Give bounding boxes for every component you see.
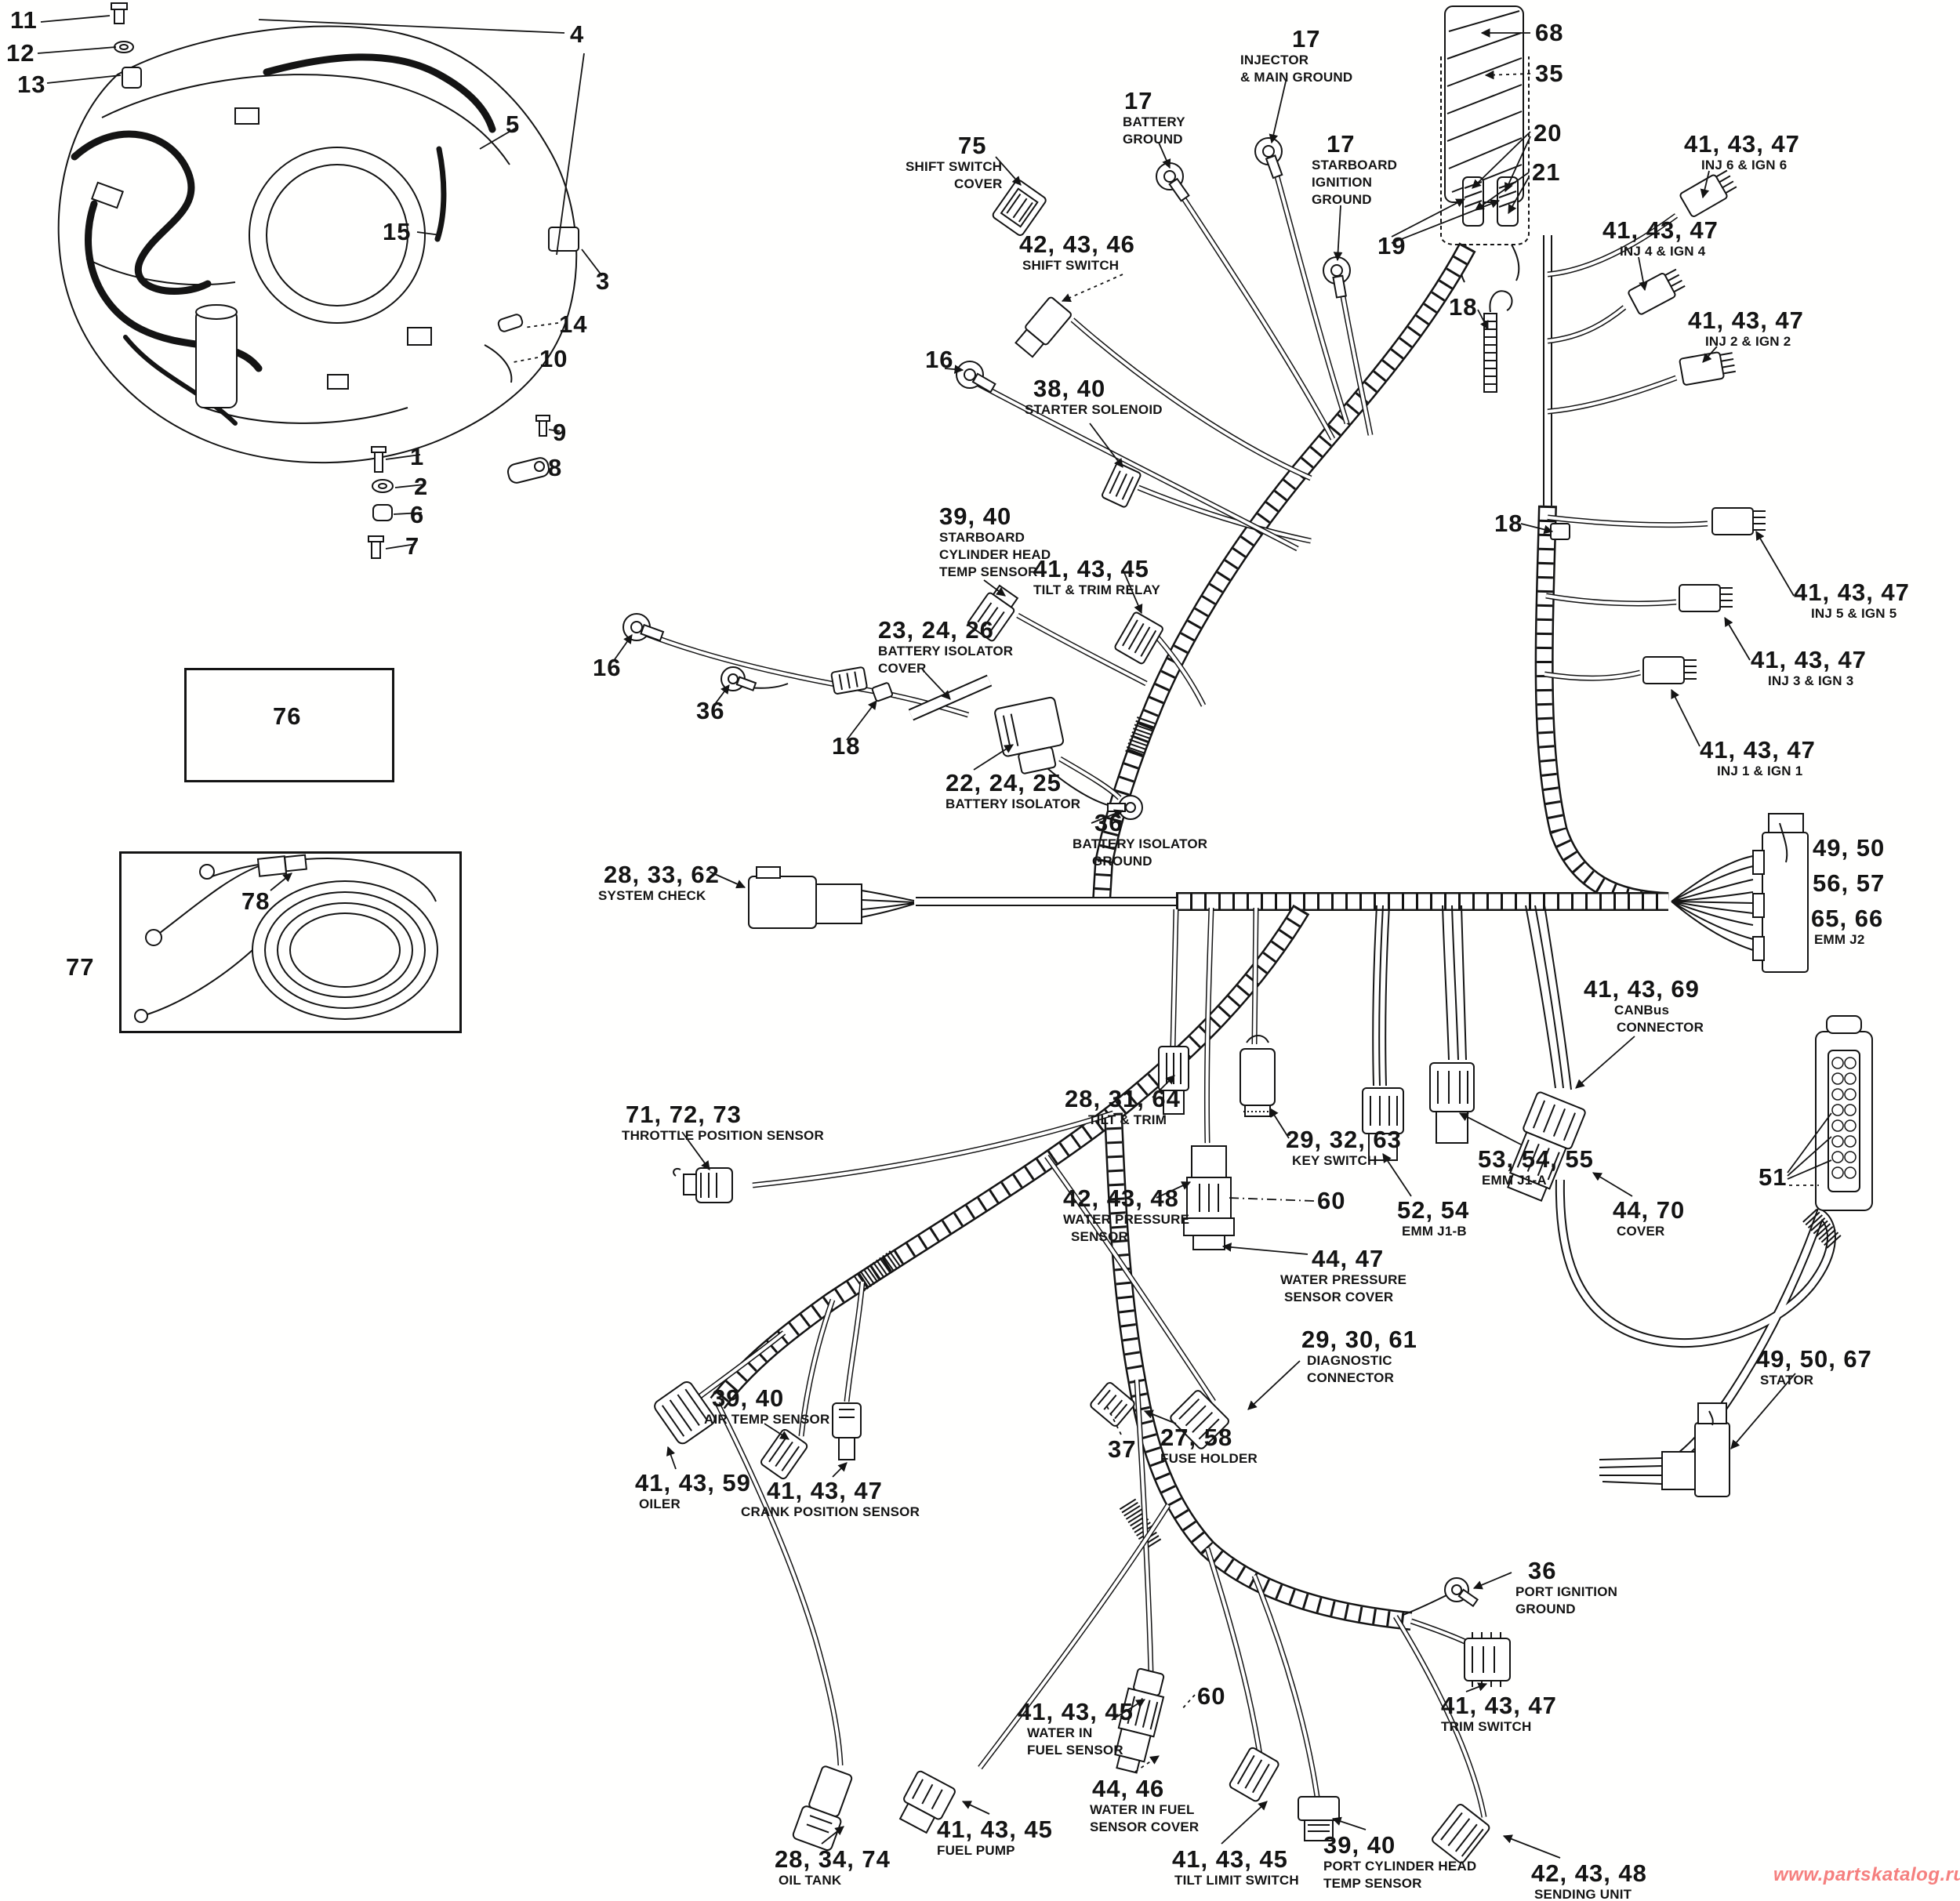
callout-sending-unit: 42, 43, 48SENDING UNIT [1531,1861,1647,1901]
callout-77: 77 [66,955,94,980]
part-number: 12 [6,41,34,66]
callout-15: 15 [383,219,411,245]
part-number: 14 [559,312,587,337]
part-label: SYSTEM CHECK [598,887,720,905]
part-number: 41, 43, 45 [1018,1700,1134,1725]
part-label: CRANK POSITION SENSOR [741,1504,920,1521]
part-number: 41, 43, 47 [1684,132,1800,157]
part-number: 6 [410,502,424,528]
part-label: TILT & TRIM RELAY [1033,582,1160,599]
part-number: 11 [10,8,38,33]
part-label: WATER IN FUEL [1090,1801,1199,1819]
callout-water-pressure-sensor: 42, 43, 48WATER PRESSURESENSOR [1063,1186,1189,1246]
callout-emm-j2-4950: 49, 50 [1813,836,1885,861]
crank-part [833,1403,861,1460]
callout-inj1: 41, 43, 47INJ 1 & IGN 1 [1700,738,1816,780]
callout-fuse-holder: 27, 58FUSE HOLDER [1160,1425,1258,1467]
powerhead-assembly-drawing [59,26,579,463]
part-number: 41, 43, 45 [1033,557,1160,582]
part-number: 19 [1377,234,1406,259]
system-check-connector [749,867,914,928]
callout-water-in-fuel-sensor-cover: 44, 46WATER IN FUELSENSOR COVER [1090,1776,1199,1836]
key-switch-part [1240,1036,1275,1116]
part-number: 29, 30, 61 [1301,1327,1417,1352]
part-label: INJ 3 & IGN 3 [1768,673,1867,690]
callout-port-cyl-head-temp: 39, 40PORT CYLINDER HEADTEMP SENSOR [1323,1833,1476,1892]
callout-5: 5 [506,112,520,137]
part-label: OIL TANK [779,1872,891,1889]
callout-20: 20 [1534,121,1562,146]
part-number: 17 [1292,27,1352,52]
part-label: GROUND [1312,191,1397,209]
callout-11: 11 [10,8,38,33]
part-number: 60 [1197,1684,1225,1709]
part-label: INJECTOR [1240,52,1352,69]
callout-emm-j1a: 53, 54, 55EMM J1-A [1478,1147,1594,1189]
callout-inj6: 41, 43, 47INJ 6 & IGN 6 [1684,132,1800,174]
stick-18 [1484,291,1512,392]
part-number: 76 [273,704,301,729]
watermark: www.partskatalog.ru [1773,1864,1960,1886]
part-number: 51 [1759,1165,1787,1190]
callout-14: 14 [559,312,587,337]
part-number: 5 [506,112,520,137]
callout-tilt-trim-relay: 41, 43, 45TILT & TRIM RELAY [1033,557,1160,599]
part-number: 17 [1124,89,1185,114]
part-number: 36 [1528,1558,1617,1584]
harness-trunks [717,235,1835,1621]
callout-3: 3 [596,269,610,294]
part-label: WATER PRESSURE [1063,1211,1189,1228]
part-number: 27, 58 [1160,1425,1258,1450]
part-label: SENSOR [1071,1228,1189,1246]
callout-2: 2 [414,474,428,499]
callout-12: 12 [6,41,34,66]
part-number: 41, 43, 45 [1172,1847,1299,1872]
part-number: 39, 40 [939,504,1051,529]
callout-trim-switch: 41, 43, 47TRIM SWITCH [1441,1693,1557,1736]
callout-tilt-trim: 28, 31, 64TILT & TRIM [1065,1087,1181,1129]
part-number: 28, 31, 64 [1065,1087,1181,1112]
part-number: 71, 72, 73 [626,1102,824,1127]
callout-emm-j1b: 52, 54EMM J1-B [1397,1198,1469,1240]
part-number: 8 [548,455,562,481]
callout-starter-solenoid: 38, 40STARTER SOLENOID [1033,376,1163,419]
part-number: 41, 43, 47 [1794,580,1910,605]
part-number: 75 [958,133,1002,158]
part-label: THROTTLE POSITION SENSOR [622,1127,824,1145]
part-number: 41, 43, 47 [1688,308,1804,333]
part-number: 36 [696,698,724,724]
callout-system-check: 28, 33, 62SYSTEM CHECK [598,862,720,905]
part-number: 41, 43, 47 [1602,218,1719,243]
callout-crank-position-sensor: 41, 43, 47CRANK POSITION SENSOR [741,1478,920,1521]
callout-18-clamp-mid: 18 [832,734,860,759]
part-label: EMM J1-A [1482,1172,1594,1189]
part-number: 9 [553,420,567,445]
part-label: BATTERY [1123,114,1185,131]
part-number: 68 [1535,20,1563,45]
part-label: EMM J2 [1814,931,1883,949]
part-number: 23, 24, 26 [878,618,1013,643]
part-number: 56, 57 [1813,871,1885,896]
part-label: BATTERY ISOLATOR [878,643,1013,660]
part-number: 41, 43, 59 [635,1471,751,1496]
callout-51: 51 [1759,1165,1787,1190]
stator-part [1599,1403,1730,1496]
part-number: 18 [1449,295,1477,320]
part-label: KEY SWITCH [1292,1152,1402,1170]
part-number: 18 [832,734,860,759]
part-label: SENSOR COVER [1090,1819,1199,1836]
callout-fuel-pump: 41, 43, 45FUEL PUMP [937,1817,1053,1859]
part-label: COVER [878,660,1013,677]
part-number: 17 [1327,132,1397,157]
part-number: 41, 43, 47 [767,1478,920,1504]
part-label: CONNECTOR [1617,1019,1704,1036]
part-number: 35 [1535,61,1563,86]
callout-10: 10 [539,346,568,372]
part-label: COVER [954,176,1002,193]
part-label: FUEL PUMP [937,1842,1053,1859]
part-number: 21 [1532,160,1560,185]
callout-78: 78 [241,889,270,914]
callout-tilt-limit-switch: 41, 43, 45TILT LIMIT SWITCH [1172,1847,1299,1889]
part-number: 49, 50 [1813,836,1885,861]
part-number: 41, 43, 47 [1700,738,1816,763]
part-number: 41, 43, 47 [1751,648,1867,673]
part-number: 39, 40 [1323,1833,1476,1858]
part-box-77 [119,851,462,1033]
part-number: 28, 34, 74 [775,1847,891,1872]
part-label: INJ 5 & IGN 5 [1811,605,1910,622]
parts-diagram: 11121345153141098126776777875SHIFT SWITC… [0,0,1960,1901]
part-number: 41, 43, 47 [1441,1693,1557,1718]
callout-emm-j2-6566: 65, 66EMM J2 [1811,906,1883,949]
callout-emm-j2-5657: 56, 57 [1813,871,1885,896]
callout-water-pressure-sensor-cover: 44, 47WATER PRESSURESENSOR COVER [1280,1246,1406,1306]
part-label: INJ 2 & IGN 2 [1705,333,1804,350]
part-number: 18 [1494,511,1523,536]
callout-76: 76 [273,704,301,729]
part-number: 36 [1094,811,1207,836]
part-label: GROUND [1515,1601,1617,1618]
part-number: 42, 43, 48 [1063,1186,1189,1211]
emm-j2-part [1671,814,1808,972]
callout-36-left: 36 [696,698,724,724]
part-label: INJ 6 & IGN 6 [1701,157,1800,174]
part-label: COVER [1617,1223,1685,1240]
part-number: 20 [1534,121,1562,146]
part-number: 44, 46 [1092,1776,1199,1801]
part-number: 41, 43, 45 [937,1817,1053,1842]
part-number: 29, 32, 63 [1286,1127,1402,1152]
part-number: 39, 40 [712,1386,829,1411]
callout-21: 21 [1532,160,1560,185]
part-number: 2 [414,474,428,499]
part-label: STATOR [1760,1372,1872,1389]
callout-35: 35 [1535,61,1563,86]
callout-oil-tank: 28, 34, 74OIL TANK [775,1847,891,1889]
part-label: STARBOARD [939,529,1051,546]
part-number: 3 [596,269,610,294]
part-label: EMM J1-B [1402,1223,1469,1240]
part-label: SENSOR COVER [1284,1289,1406,1306]
part-number: 4 [570,22,584,47]
part-number: 78 [241,889,270,914]
callout-water-in-fuel-sensor: 41, 43, 45WATER INFUEL SENSOR [1018,1700,1134,1759]
part-label: CONNECTOR [1307,1370,1417,1387]
callout-13: 13 [17,72,45,97]
part-label: INJ 1 & IGN 1 [1717,763,1816,780]
water-pressure-sensor-part [1184,1146,1234,1250]
callout-6: 6 [410,502,424,528]
part-number: 16 [593,655,621,680]
part-label: BATTERY ISOLATOR [1073,836,1207,853]
part-label: STARBOARD [1312,157,1397,174]
callout-18-clamp-right: 18 [1494,511,1523,536]
callout-inj2: 41, 43, 47INJ 2 & IGN 2 [1688,308,1804,350]
part-number: 16 [925,347,953,372]
callout-throttle-position-sensor: 71, 72, 73THROTTLE POSITION SENSOR [626,1102,824,1145]
callout-37: 37 [1108,1437,1136,1462]
part-label: WATER IN [1027,1725,1134,1742]
part-number: 15 [383,219,411,245]
callout-cover-4470: 44, 70COVER [1613,1198,1685,1240]
callout-inj3: 41, 43, 47INJ 3 & IGN 3 [1751,648,1867,690]
part-label: GROUND [1123,131,1185,148]
callout-16-left: 16 [593,655,621,680]
callout-battery-ground: 17BATTERYGROUND [1123,89,1185,148]
part-label: FUEL SENSOR [1027,1742,1134,1759]
callout-1: 1 [410,444,424,470]
part-label: DIAGNOSTIC [1307,1352,1417,1370]
part-number: 42, 43, 48 [1531,1861,1647,1886]
part-number: 1 [410,444,424,470]
part-number: 41, 43, 69 [1584,977,1704,1002]
callout-oiler: 41, 43, 59OILER [635,1471,751,1513]
callout-injector-main-ground: 17INJECTOR& MAIN GROUND [1240,27,1352,86]
part-label: FUSE HOLDER [1160,1450,1258,1467]
callout-68: 68 [1535,20,1563,45]
part-label: INJ 4 & IGN 4 [1620,243,1719,260]
part-number: 7 [405,534,419,559]
part-label: WATER PRESSURE [1280,1272,1406,1289]
part-label: GROUND [1092,853,1207,870]
callout-9: 9 [553,420,567,445]
callout-inj5: 41, 43, 47INJ 5 & IGN 5 [1794,580,1910,622]
part-number: 22, 24, 25 [946,771,1080,796]
callout-key-switch: 29, 32, 63KEY SWITCH [1286,1127,1402,1170]
part-label: STARTER SOLENOID [1025,401,1163,419]
part-label: IGNITION [1312,174,1397,191]
emm-module-drawing [1441,6,1529,282]
callout-canbus-connector: 41, 43, 69CANBusCONNECTOR [1584,977,1704,1036]
part-number: 42, 43, 46 [1019,232,1135,257]
part-label: TILT LIMIT SWITCH [1174,1872,1299,1889]
part-number: 44, 70 [1613,1198,1685,1223]
callout-4: 4 [570,22,584,47]
callout-shift-switch-cover: 75SHIFT SWITCHCOVER [906,133,1002,193]
part-label: TILT & TRIM [1088,1112,1181,1129]
part-label: AIR TEMP SENSOR [704,1411,829,1428]
part-number: 49, 50, 67 [1756,1347,1872,1372]
part-number: 37 [1108,1437,1136,1462]
connector-51-part [1816,1016,1872,1210]
callout-16-top: 16 [925,347,953,372]
part-label: PORT CYLINDER HEAD [1323,1858,1476,1875]
part-number: 65, 66 [1811,906,1883,931]
part-label: PORT IGNITION [1515,1584,1617,1601]
part-number: 13 [17,72,45,97]
part-number: 38, 40 [1033,376,1163,401]
part-label: CANBus [1614,1002,1704,1019]
part-number: 60 [1317,1188,1345,1214]
tps-part [673,1168,732,1203]
fastener-parts [111,3,550,558]
part-number: 52, 54 [1397,1198,1469,1223]
callout-starboard-ignition-ground: 17STARBOARDIGNITIONGROUND [1312,132,1397,209]
callout-diagnostic-connector: 29, 30, 61DIAGNOSTICCONNECTOR [1301,1327,1417,1387]
callout-shift-switch: 42, 43, 46SHIFT SWITCH [1019,232,1135,274]
callout-battery-isolator-ground: 36BATTERY ISOLATORGROUND [1073,811,1207,870]
part-number: 28, 33, 62 [604,862,720,887]
callout-7: 7 [405,534,419,559]
part-label: SENDING UNIT [1534,1886,1647,1901]
part-label: BATTERY ISOLATOR [946,796,1080,813]
callout-8: 8 [548,455,562,481]
part-label: TEMP SENSOR [1323,1875,1476,1892]
part-label: SHIFT SWITCH [1022,257,1135,274]
part-number: 44, 47 [1312,1246,1406,1272]
part-number: 77 [66,955,94,980]
callout-battery-isolator: 22, 24, 25BATTERY ISOLATOR [946,771,1080,813]
callout-18-stick: 18 [1449,295,1477,320]
part-label: OILER [639,1496,751,1513]
callout-19: 19 [1377,234,1406,259]
part-label: & MAIN GROUND [1240,69,1352,86]
part-label: TRIM SWITCH [1441,1718,1557,1736]
callout-inj4: 41, 43, 47INJ 4 & IGN 4 [1602,218,1719,260]
part-label: SHIFT SWITCH [906,158,1002,176]
part-number: 10 [539,346,568,372]
callout-60-bottom: 60 [1197,1684,1225,1709]
callout-battery-isolator-cover: 23, 24, 26BATTERY ISOLATORCOVER [878,618,1013,677]
callout-air-temp-sensor: 39, 40AIR TEMP SENSOR [712,1386,829,1428]
callout-60-top: 60 [1317,1188,1345,1214]
callout-port-ignition-ground: 36PORT IGNITIONGROUND [1515,1558,1617,1618]
callout-stator: 49, 50, 67STATOR [1756,1347,1872,1389]
part-number: 53, 54, 55 [1478,1147,1594,1172]
